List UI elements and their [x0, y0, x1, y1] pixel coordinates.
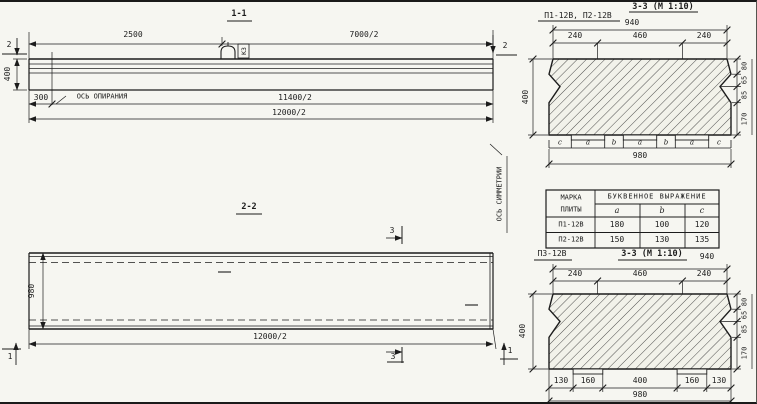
dim-label-65-upper: 65	[742, 76, 749, 84]
dim-label-11400-2: 11400/2	[278, 94, 312, 102]
table-row1-mark: П1-12В	[558, 222, 583, 229]
dim-label-240-lower-left: 240	[568, 270, 582, 278]
section-3-3-lower-title: 3-3 (М 1:10)	[621, 250, 682, 259]
table-row1-b: 100	[655, 221, 669, 229]
letter-dim-a3: a	[690, 140, 694, 147]
dim-label-240-lower-right: 240	[697, 270, 711, 278]
dim-label-460-lower: 460	[633, 270, 647, 278]
drawing-canvas	[0, 2, 757, 404]
dim-label-85-upper: 85	[742, 91, 749, 99]
dim-label-160-right: 160	[685, 377, 699, 385]
symmetry-axis-label: ОСЬ СИММЕТРИИ	[497, 167, 504, 222]
lifting-loop-mark: К3	[240, 47, 247, 55]
dim-label-980-upper: 980	[633, 152, 647, 160]
dim-label-2500: 2500	[123, 31, 142, 39]
table-row1-a: 180	[610, 221, 624, 229]
dim-label-940-upper: 940	[625, 19, 639, 27]
dim-label-940-lower: 940	[700, 253, 714, 261]
letter-dim-a1: a	[586, 140, 590, 147]
dim-label-300: 300	[34, 94, 48, 102]
table-subheader-b: b	[659, 207, 664, 215]
table-header-plity: ПЛИТЫ	[560, 207, 581, 214]
plate-mark-label-lower: П3-12В	[538, 250, 567, 258]
plate-marks-label-upper: П1-12В, П2-12В	[544, 12, 611, 20]
table-row2-c: 135	[695, 236, 709, 244]
dim-label-85-lower: 85	[742, 325, 749, 333]
support-axis-label: ОСЬ ОПИРАНИЯ	[77, 94, 128, 101]
cut-marker-3-bottom: 3	[391, 353, 396, 361]
section-2-2-title: 2-2	[241, 203, 256, 212]
section-1-1-lines	[2, 21, 517, 123]
table-row2-a: 150	[610, 236, 624, 244]
dim-label-240-upper-left: 240	[568, 32, 582, 40]
dim-label-12000-2-plan: 12000/2	[253, 333, 287, 341]
table-subheader-a: a	[615, 207, 620, 215]
table-header-marka: МАРКА	[560, 195, 581, 202]
letter-dim-b1: b	[612, 140, 616, 147]
drawing-sheet: 1-1 2500 7000/2 2 2 400 300 ОСЬ ОПИРАНИЯ…	[0, 0, 757, 404]
dim-label-170-upper: 170	[742, 113, 749, 126]
dim-label-400-lower: 400	[519, 324, 527, 338]
section-1-1-title: 1-1	[231, 10, 246, 19]
letter-dim-b2: b	[664, 140, 668, 147]
dim-label-240-upper-right: 240	[697, 32, 711, 40]
cut-marker-2-left: 2	[7, 41, 12, 49]
table-header-expression: БУКВЕННОЕ ВЫРАЖЕНИЕ	[607, 194, 706, 201]
dim-label-80-upper: 80	[742, 62, 749, 70]
table-row2-mark: П2-12В	[558, 237, 583, 244]
dim-label-980-plan: 980	[28, 284, 36, 298]
letter-dim-c2: c	[717, 140, 721, 147]
dim-label-130-left: 130	[554, 377, 568, 385]
dim-label-400-upper: 400	[522, 90, 530, 104]
cut-marker-1-left: 1	[8, 353, 13, 361]
dim-label-170-lower: 170	[742, 347, 749, 360]
dim-label-12000-2-elev: 12000/2	[272, 109, 306, 117]
dim-label-65-lower: 65	[742, 311, 749, 319]
table-row2-b: 130	[655, 236, 669, 244]
letter-dim-c1: c	[558, 140, 562, 147]
table-subheader-c: c	[700, 207, 704, 215]
dim-label-400-bottom: 400	[633, 377, 647, 385]
letter-dim-a2: a	[638, 140, 642, 147]
dim-label-400-elev: 400	[4, 67, 12, 81]
cut-marker-3-top: 3	[390, 227, 395, 235]
dim-label-980-lower: 980	[633, 391, 647, 399]
section-3-3-upper-title: 3-3 (М 1:10)	[632, 3, 693, 12]
table-row1-c: 120	[695, 221, 709, 229]
dim-label-460-upper: 460	[633, 32, 647, 40]
dim-label-130-right: 130	[712, 377, 726, 385]
cut-marker-1-right: 1	[508, 347, 513, 355]
dim-label-7000-2: 7000/2	[350, 31, 379, 39]
dim-label-160-left: 160	[581, 377, 595, 385]
dim-label-80-lower: 80	[742, 298, 749, 306]
cut-marker-2-right: 2	[503, 42, 508, 50]
